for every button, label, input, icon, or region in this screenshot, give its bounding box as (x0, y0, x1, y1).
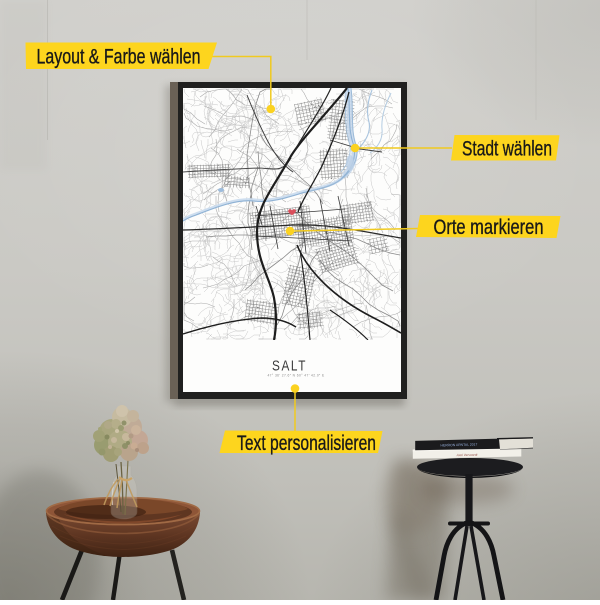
svg-text:Layout & Farbe wählen: Layout & Farbe wählen (37, 46, 201, 69)
svg-text:SALT: SALT (272, 359, 307, 375)
svg-text:47° 36′ 27.6″ N 60° 47′ 42.0″: 47° 36′ 27.6″ N 60° 47′ 42.0″ E (267, 373, 325, 377)
svg-text:Orte markieren: Orte markieren (434, 216, 544, 239)
svg-text:Stadt wählen: Stadt wählen (462, 138, 552, 161)
svg-text:Text personalisieren: Text personalisieren (237, 432, 376, 455)
svg-text:Axel Vervoordt: Axel Vervoordt (456, 453, 478, 457)
